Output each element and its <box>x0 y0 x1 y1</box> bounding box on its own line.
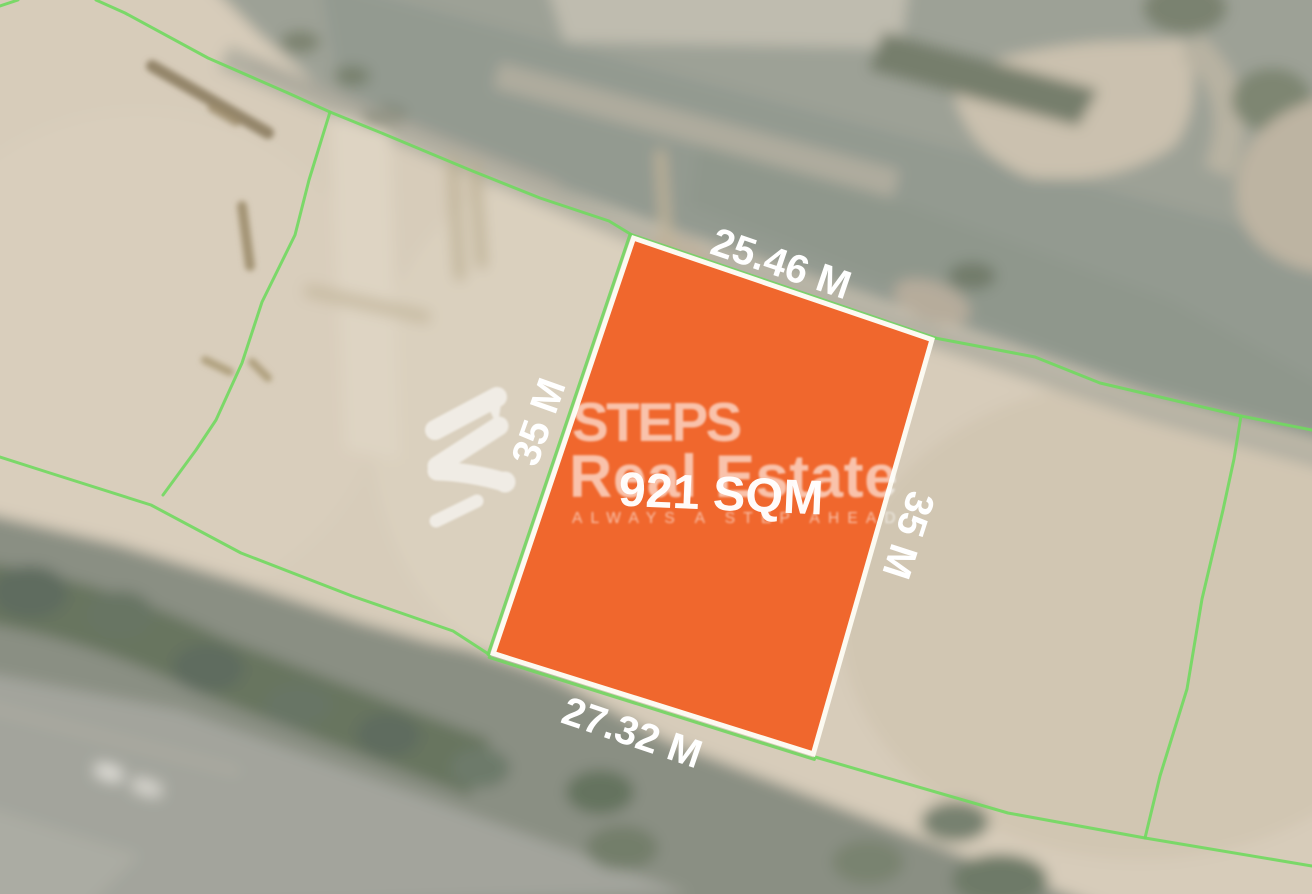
svg-text:921 SQM: 921 SQM <box>618 463 825 526</box>
